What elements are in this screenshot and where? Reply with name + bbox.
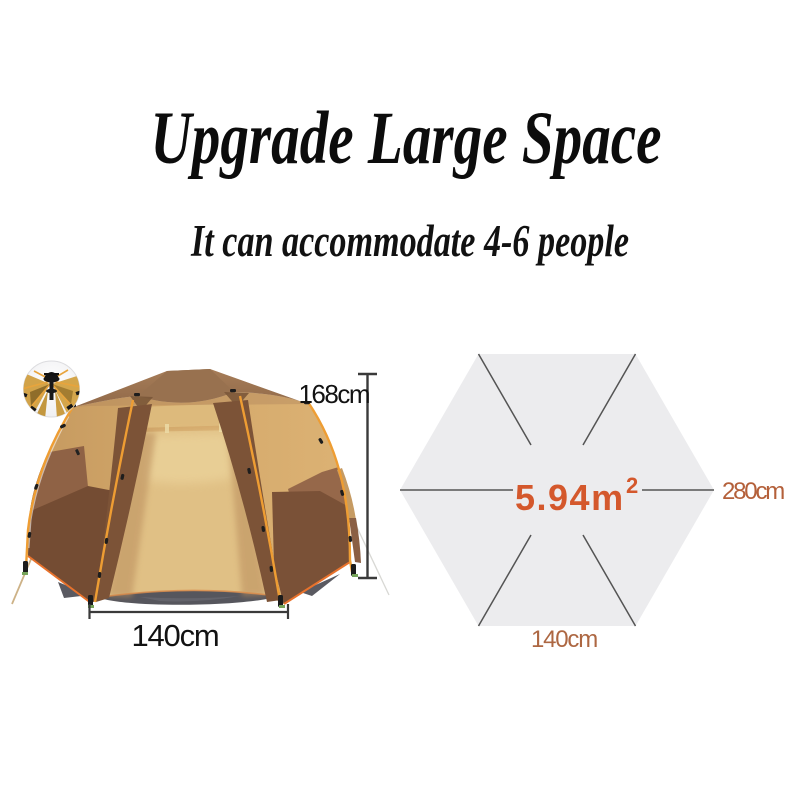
svg-text:140cm: 140cm (131, 618, 218, 653)
svg-text:140cm: 140cm (531, 626, 597, 653)
svg-text:280cm: 280cm (722, 478, 784, 505)
svg-text:Upgrade Large Space: Upgrade Large Space (151, 97, 662, 180)
svg-text:It can accommodate 4-6 people: It can accommodate 4-6 people (190, 216, 629, 266)
svg-text:2: 2 (626, 473, 638, 498)
svg-text:5.94m: 5.94m (515, 477, 625, 518)
svg-text:168cm: 168cm (298, 379, 369, 409)
